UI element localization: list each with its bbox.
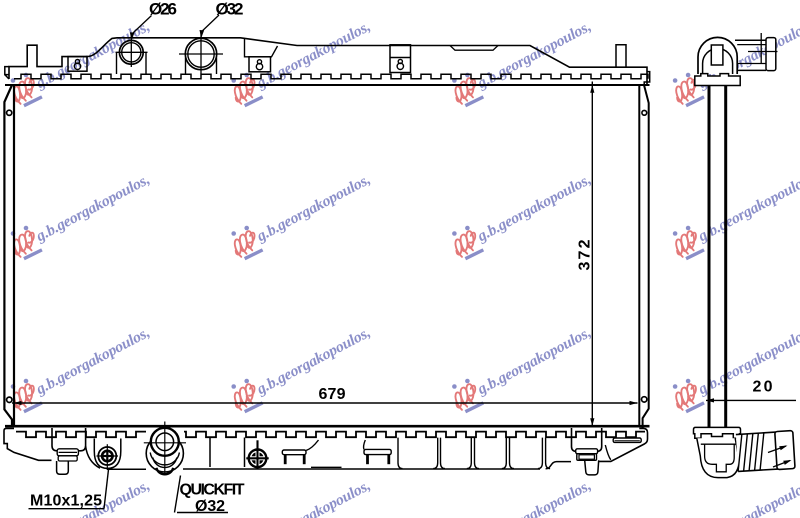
svg-text:M10x1,25: M10x1,25 (30, 493, 102, 510)
svg-text:372: 372 (577, 239, 594, 270)
svg-text:679: 679 (319, 386, 346, 403)
svg-text:QUICKFIT: QUICKFIT (180, 482, 245, 499)
svg-text:Ø32: Ø32 (216, 0, 244, 19)
svg-text:Ø26: Ø26 (149, 0, 177, 19)
